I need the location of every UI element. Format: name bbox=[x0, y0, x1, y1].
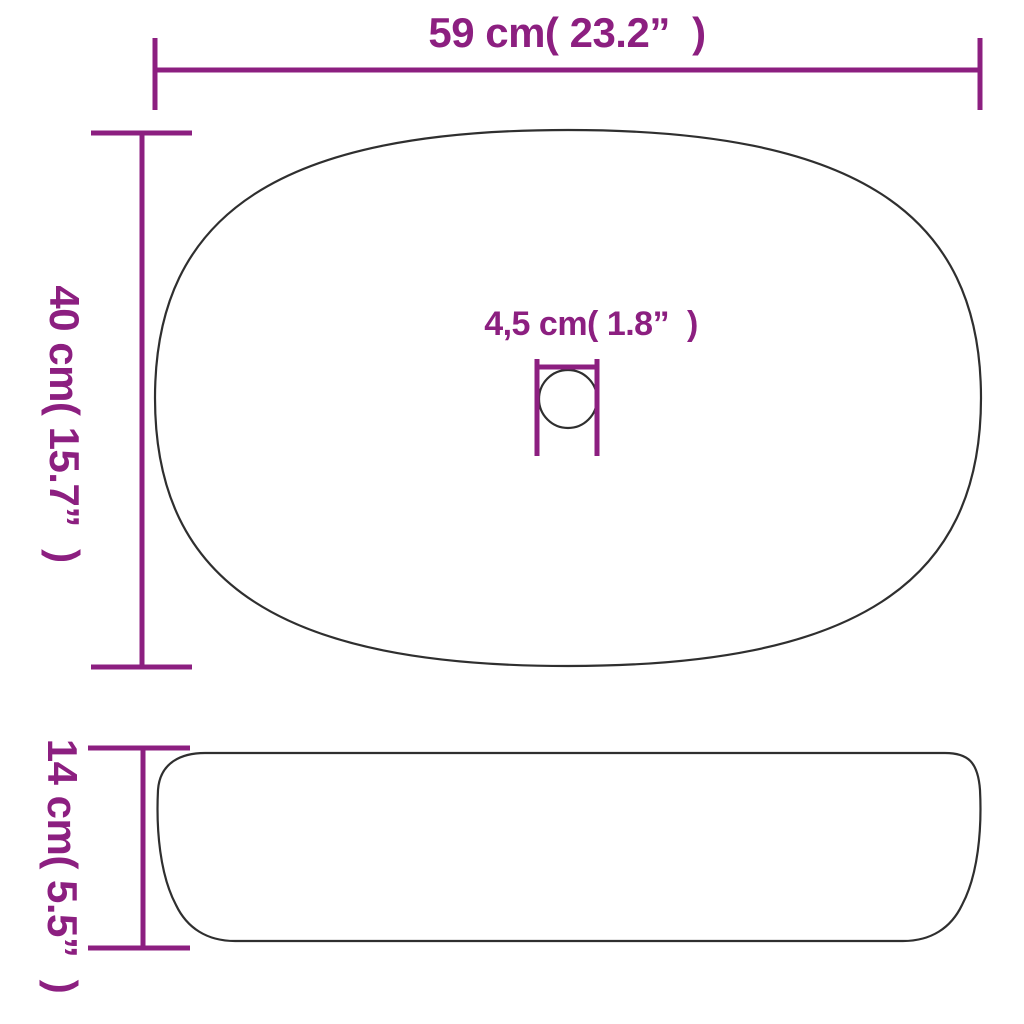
dimension-diagram: 59 cm( 23.2” ) 40 cm( 15.7” ) 4,5 cm( 1.… bbox=[0, 0, 1024, 1024]
basin-top-view-outline bbox=[155, 130, 981, 666]
diagram-drawing bbox=[0, 0, 1024, 1024]
basin-side-view-outline bbox=[158, 753, 981, 941]
height-dimension-line bbox=[88, 748, 190, 948]
drain-dimension-label: 4,5 cm( 1.8” ) bbox=[484, 307, 698, 341]
height-dimension-label: 14 cm( 5.5” ) bbox=[41, 739, 83, 993]
width-dimension-label: 59 cm( 23.2” ) bbox=[428, 12, 705, 54]
depth-dimension-line bbox=[91, 133, 192, 667]
product-outlines bbox=[155, 130, 981, 941]
drain-dimension-bracket bbox=[537, 359, 597, 456]
depth-dimension-label: 40 cm( 15.7” ) bbox=[43, 285, 85, 562]
drain-hole bbox=[539, 370, 597, 428]
